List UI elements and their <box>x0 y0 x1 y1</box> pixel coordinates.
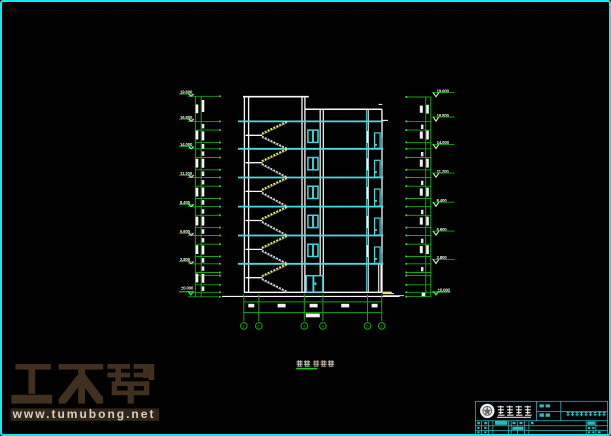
svg-text:6: 6 <box>380 324 383 329</box>
svg-text:2: 2 <box>258 324 261 329</box>
svg-text:www.tumubong.net: www.tumubong.net <box>12 407 156 421</box>
svg-text:±0.000: ±0.000 <box>181 285 194 290</box>
svg-text:5: 5 <box>366 324 369 329</box>
svg-text:1: 1 <box>243 324 246 329</box>
svg-text:4: 4 <box>322 324 325 329</box>
svg-text:3: 3 <box>303 324 306 329</box>
